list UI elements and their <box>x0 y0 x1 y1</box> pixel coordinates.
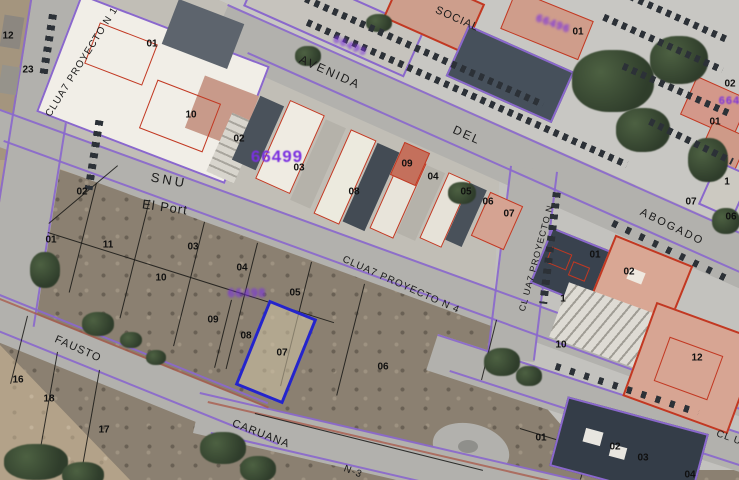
parcel-number-label: 08 <box>348 187 359 198</box>
parcel-number-label: 07 <box>276 348 287 359</box>
parcel-number-label: 01 <box>572 27 583 38</box>
parcel-number-label: 12 <box>2 31 13 42</box>
parcel-number-label: 16 <box>12 375 23 386</box>
parcel-number-label: 11 <box>103 240 114 251</box>
parcel-number-label: 09 <box>401 159 412 170</box>
parcel-number-label: 07 <box>503 209 514 220</box>
parcel-number-label: 1 <box>560 294 566 305</box>
tree-canopy <box>4 444 68 480</box>
tree-canopy <box>120 332 142 348</box>
parcel-number-label: 10 <box>555 340 566 351</box>
block-code-label: 66498 <box>228 286 266 300</box>
roundabout-island <box>458 440 478 453</box>
block-code-label: 6640 <box>719 95 739 107</box>
parcel-number-label: 02 <box>623 267 634 278</box>
parcel-number-label: 05 <box>289 288 300 299</box>
parcel-number-label: 17 <box>98 425 109 436</box>
parcel-number-label: 01 <box>709 117 720 128</box>
parcel-number-label: 02 <box>233 134 244 145</box>
parcel-number-label: 06 <box>482 197 493 208</box>
parcel-number-label: 02 <box>724 79 735 90</box>
parcel-number-label: 08 <box>240 331 251 342</box>
parcel-number-label: 03 <box>187 242 198 253</box>
tree-canopy <box>146 350 166 365</box>
parcel-number-label: 23 <box>22 65 33 76</box>
parcel-number-label: 05 <box>460 187 471 198</box>
parcel-number-label: 07 <box>685 197 696 208</box>
parcel-number-label: 12 <box>691 353 702 364</box>
parcel-number-label: 10 <box>185 110 196 121</box>
parcel-number-label: 04 <box>427 172 438 183</box>
parcel-number-label: 01 <box>45 235 56 246</box>
parcel-number-label: 04 <box>236 263 247 274</box>
parcel-number-label: 18 <box>43 394 54 405</box>
parcel-number-label: 10 <box>155 273 166 284</box>
tree-canopy <box>240 456 276 480</box>
tree-canopy <box>516 366 542 386</box>
parcel-number-label: 06 <box>377 362 388 373</box>
tree-canopy <box>572 50 654 112</box>
parcel-number-label: 03 <box>637 453 648 464</box>
tree-canopy <box>30 252 60 288</box>
parcel-number-label: 06 <box>725 212 736 223</box>
tree-canopy <box>200 432 246 464</box>
parcel-number-label: 01 <box>589 250 600 261</box>
parcel-number-label: 09 <box>207 315 218 326</box>
parcel-number-label: 1 <box>724 177 730 188</box>
tree-canopy <box>82 312 114 336</box>
parcel-number-label: 01 <box>146 39 157 50</box>
parcel-number-label: 03 <box>293 163 304 174</box>
tree-canopy <box>484 348 520 376</box>
parcel-number-label: 04 <box>684 470 695 480</box>
map-viewport[interactable]: CLUA7 PROYECTO N 1AVENIDADELABOGADOSOCIA… <box>0 0 739 480</box>
parcel-number-label: 02 <box>609 442 620 453</box>
parcel-number-label: 01 <box>535 433 546 444</box>
parcel-number-label: 02 <box>76 187 87 198</box>
tree-canopy <box>62 462 104 480</box>
